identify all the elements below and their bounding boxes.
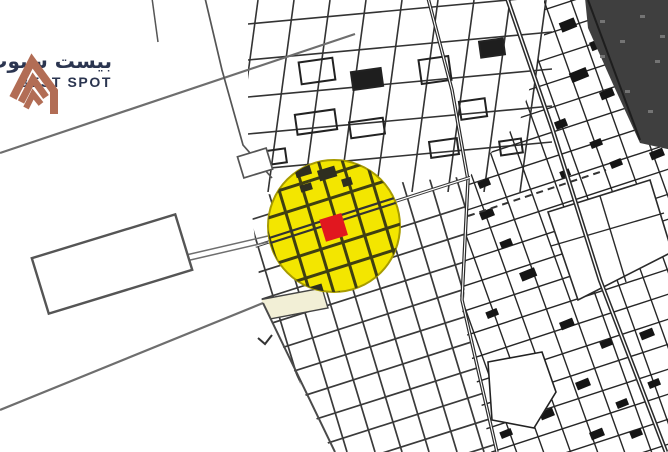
- map-image: بيست سبوت BEST SPOT: [0, 0, 668, 452]
- logo: بيست سبوت BEST SPOT: [8, 50, 112, 90]
- chevron-mark-icon: [8, 50, 60, 116]
